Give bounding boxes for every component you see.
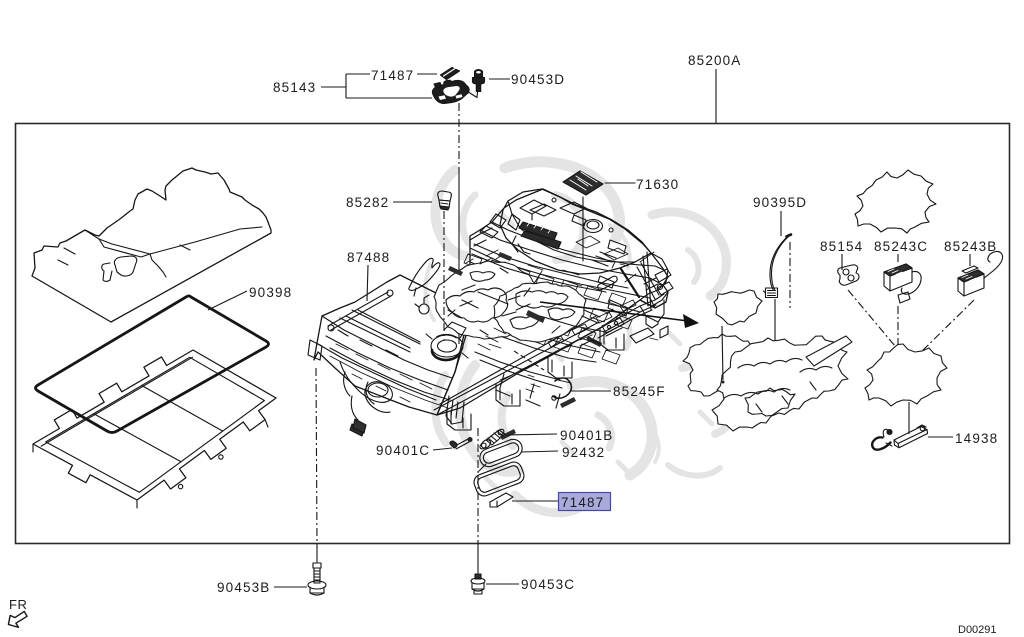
svg-text:90401C: 90401C <box>376 443 430 458</box>
svg-text:14938: 14938 <box>955 431 998 446</box>
svg-text:71630: 71630 <box>636 177 679 192</box>
svg-text:D00291: D00291 <box>958 624 997 636</box>
svg-text:90398: 90398 <box>249 285 292 300</box>
svg-text:85243C: 85243C <box>874 239 928 254</box>
svg-text:71487: 71487 <box>561 495 604 510</box>
svg-text:85200A: 85200A <box>688 53 741 68</box>
svg-text:87488: 87488 <box>347 250 390 265</box>
svg-text:71487: 71487 <box>371 68 414 83</box>
svg-text:85154: 85154 <box>820 239 863 254</box>
svg-text:85243B: 85243B <box>944 239 997 254</box>
svg-text:90453C: 90453C <box>521 577 575 592</box>
svg-text:85282: 85282 <box>346 195 389 210</box>
svg-text:90401B: 90401B <box>560 428 613 443</box>
svg-text:90453B: 90453B <box>217 580 270 595</box>
svg-text:85245F: 85245F <box>613 384 666 399</box>
svg-text:90453D: 90453D <box>511 72 565 87</box>
svg-text:FR: FR <box>9 597 27 612</box>
svg-text:85143: 85143 <box>273 80 316 95</box>
svg-text:92432: 92432 <box>562 445 605 460</box>
svg-text:90395D: 90395D <box>753 195 807 210</box>
